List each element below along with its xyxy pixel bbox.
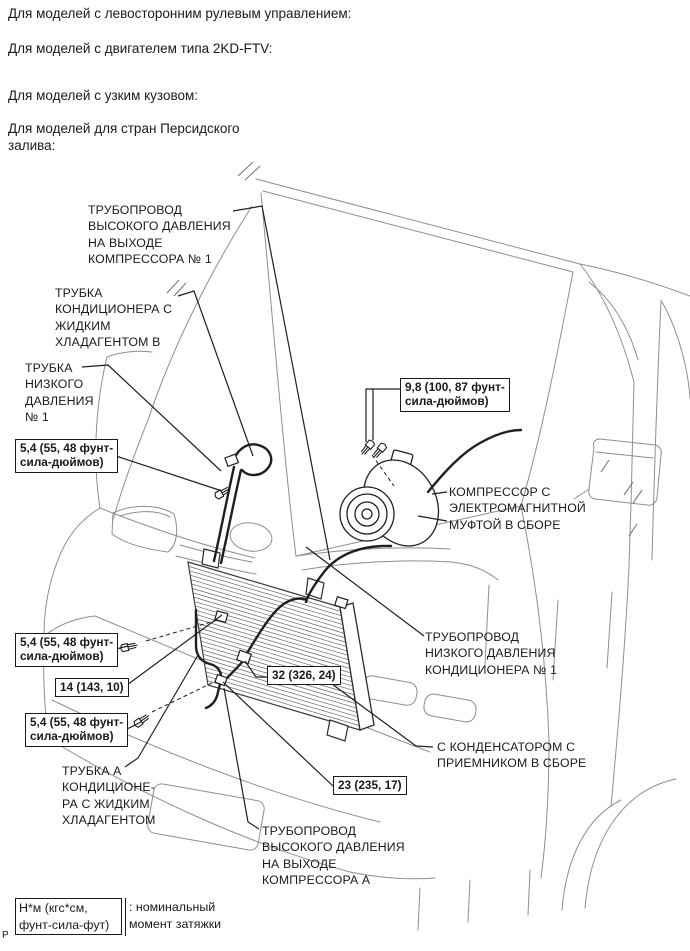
grille-emblem	[228, 520, 274, 554]
torque-spec-32: 32 (326, 24)	[267, 666, 341, 685]
torque-spec-5-4-bottom: 5,4 (55, 48 фунт- сила-дюймов)	[25, 713, 128, 747]
callout-compressor-assembly: КОМПРЕССОР С ЭЛЕКТРОМАГНИТНОЙ МУФТОЙ В С…	[449, 484, 586, 533]
header-narrow-body: Для моделей с узким кузовом:	[8, 87, 198, 104]
torque-spec-14: 14 (143, 10)	[55, 678, 129, 697]
header-engine-type: Для моделей с двигателем типа 2KD-FTV:	[8, 40, 272, 57]
callout-condenser-receiver-assembly: С КОНДЕНСАТОРОМ С ПРИЕМНИКОМ В СБОРЕ	[437, 739, 586, 772]
callout-high-pressure-outlet-pipe-1: ТРУБОПРОВОД ВЫСОКОГО ДАВЛЕНИЯ НА ВЫХОДЕ …	[88, 202, 231, 268]
header-gulf-countries: Для моделей для стран Персидского залива…	[8, 120, 240, 154]
headlight	[112, 506, 177, 552]
torque-spec-5-4-top: 5,4 (55, 48 фунт- сила-дюймов)	[15, 439, 118, 473]
bolt-icon	[359, 439, 375, 457]
callout-low-pressure-pipe-1: ТРУБОПРОВОД НИЗКОГО ДАВЛЕНИЯ КОНДИЦИОНЕР…	[425, 629, 557, 678]
legend-divider	[125, 898, 126, 936]
callout-liquid-refrigerant-tube-a: ТРУБКА А КОНДИЦИОНЕ- РА С ЖИДКИМ ХЛАДАГЕ…	[62, 763, 156, 829]
torque-spec-9-8: 9,8 (100, 87 фунт- сила-дюймов)	[400, 378, 510, 412]
header-left-hand-drive: Для моделей с левосторонним рулевым упра…	[8, 5, 351, 22]
callout-liquid-refrigerant-tube-b: ТРУБКА КОНДИЦИОНЕРА С ЖИДКИМ ХЛАДАГЕНТОМ…	[55, 285, 172, 351]
side-mirror	[574, 439, 661, 505]
callout-high-pressure-outlet-pipe-a: ТРУБОПРОВОД ВЫСОКОГО ДАВЛЕНИЯ НА ВЫХОДЕ …	[262, 823, 405, 889]
suction-pipe	[428, 430, 521, 492]
page-marker: Р	[2, 930, 9, 941]
torque-spec-5-4-mid: 5,4 (55, 48 фунт- сила-дюймов)	[15, 633, 118, 667]
legend-unit-box: Н*м (кгс*см, фунт-сила-фут)	[15, 898, 122, 935]
callout-low-pressure-tube-1: ТРУБКА НИЗКОГО ДАВЛЕНИЯ № 1	[25, 360, 94, 426]
service-manual-page: Для моделей с левосторонним рулевым упра…	[0, 0, 690, 951]
bolt-icon	[133, 713, 151, 728]
torque-spec-23: 23 (235, 17)	[333, 776, 407, 795]
wheel-arch	[585, 779, 676, 908]
legend-description: : номинальный момент затяжки	[129, 899, 221, 933]
condenser-bracket	[202, 549, 220, 568]
